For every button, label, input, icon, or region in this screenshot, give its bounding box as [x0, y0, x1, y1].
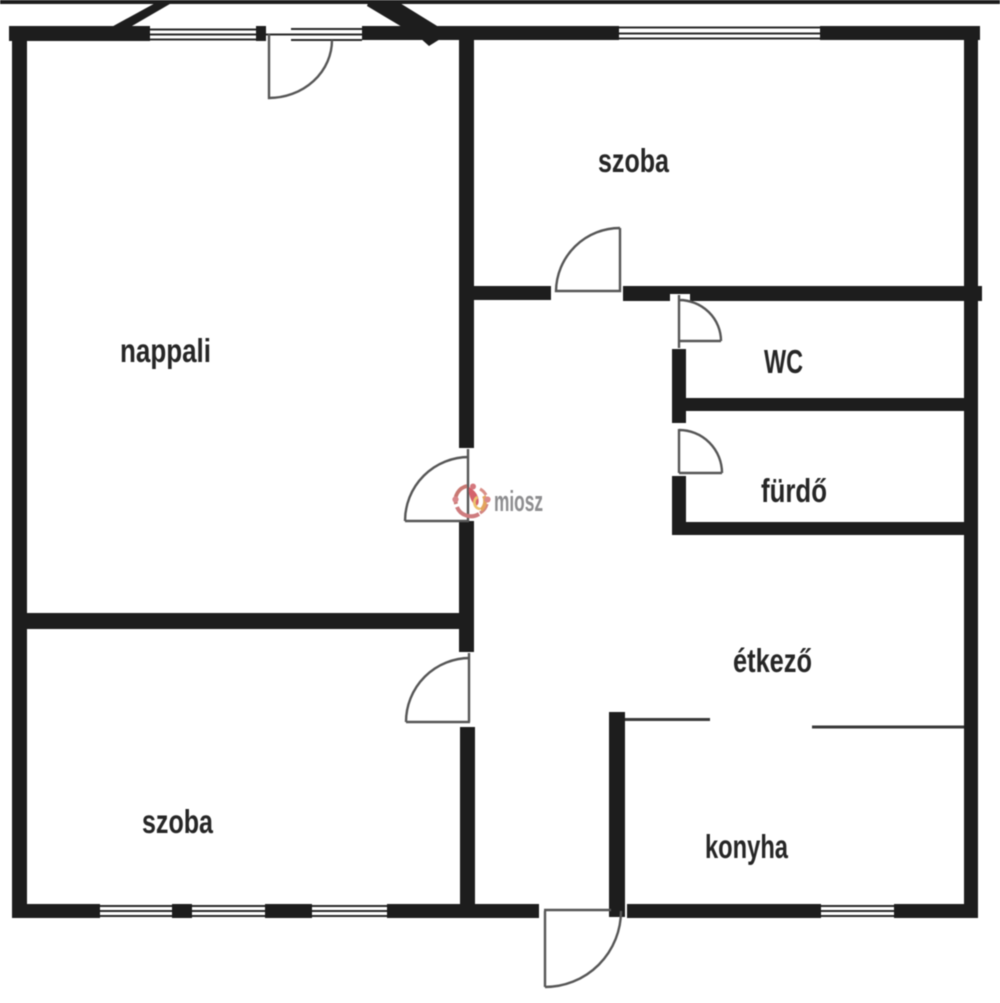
- svg-text:étkező: étkező: [733, 642, 812, 679]
- svg-text:szoba: szoba: [142, 803, 213, 840]
- svg-text:nappali: nappali: [120, 332, 211, 369]
- svg-text:szoba: szoba: [598, 142, 669, 179]
- svg-text:fürdő: fürdő: [761, 472, 827, 509]
- svg-text:konyha: konyha: [705, 828, 788, 865]
- svg-text:miosz: miosz: [494, 486, 543, 518]
- svg-text:WC: WC: [764, 343, 803, 380]
